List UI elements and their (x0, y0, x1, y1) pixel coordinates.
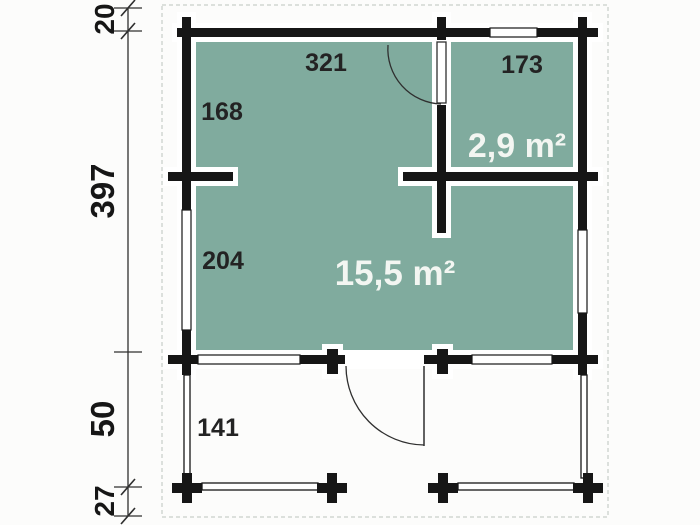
terrace-post (317, 473, 347, 503)
right-wall (578, 17, 587, 375)
dimension-label-house-depth: 397 (84, 163, 121, 218)
label-room1-wall-left: 168 (201, 98, 243, 126)
label-main-wall-left: 204 (202, 247, 244, 275)
label-main-area: 15,5 m² (335, 254, 456, 293)
terrace-railing-right (581, 375, 587, 478)
floor-plan: 20 397 50 27 321 168 173 204 141 2,9 m² … (0, 0, 700, 525)
window-right (578, 230, 587, 313)
dimension-label-top-offset: 20 (89, 3, 120, 34)
dimension-line-assembly: 20 397 50 27 (84, 0, 142, 524)
dimension-label-terrace-depth: 50 (84, 401, 121, 438)
window-top (490, 28, 537, 37)
terrace-post (428, 473, 458, 503)
window-bottom-left (198, 355, 300, 364)
window-bottom-right (472, 355, 552, 364)
terrace-railing-left (184, 375, 190, 478)
terrace-railing-bottom-left (202, 483, 318, 490)
terrace-post (573, 473, 603, 503)
interior-door-leaf (437, 42, 446, 103)
window-left (182, 210, 191, 330)
terrace-post (172, 473, 202, 503)
mid-wall-left-stub (168, 172, 233, 181)
label-room2-width: 173 (501, 51, 543, 79)
dimension-label-terrace-edge: 27 (89, 485, 120, 516)
floor-plan-drawing: 20 397 50 27 321 168 173 204 141 2,9 m² … (0, 0, 700, 525)
mid-wall-right (403, 172, 598, 181)
label-room2-area: 2,9 m² (468, 127, 566, 165)
bottom-wall-post-right (437, 349, 448, 374)
terrace-railing-bottom-right (458, 483, 574, 490)
room-fill (190, 30, 588, 362)
terrace-railings (184, 375, 587, 490)
label-terrace-side: 141 (197, 414, 239, 442)
bottom-wall-post-left (327, 349, 338, 374)
label-room1-width: 321 (305, 49, 347, 77)
terrace-door-arc (346, 366, 424, 445)
